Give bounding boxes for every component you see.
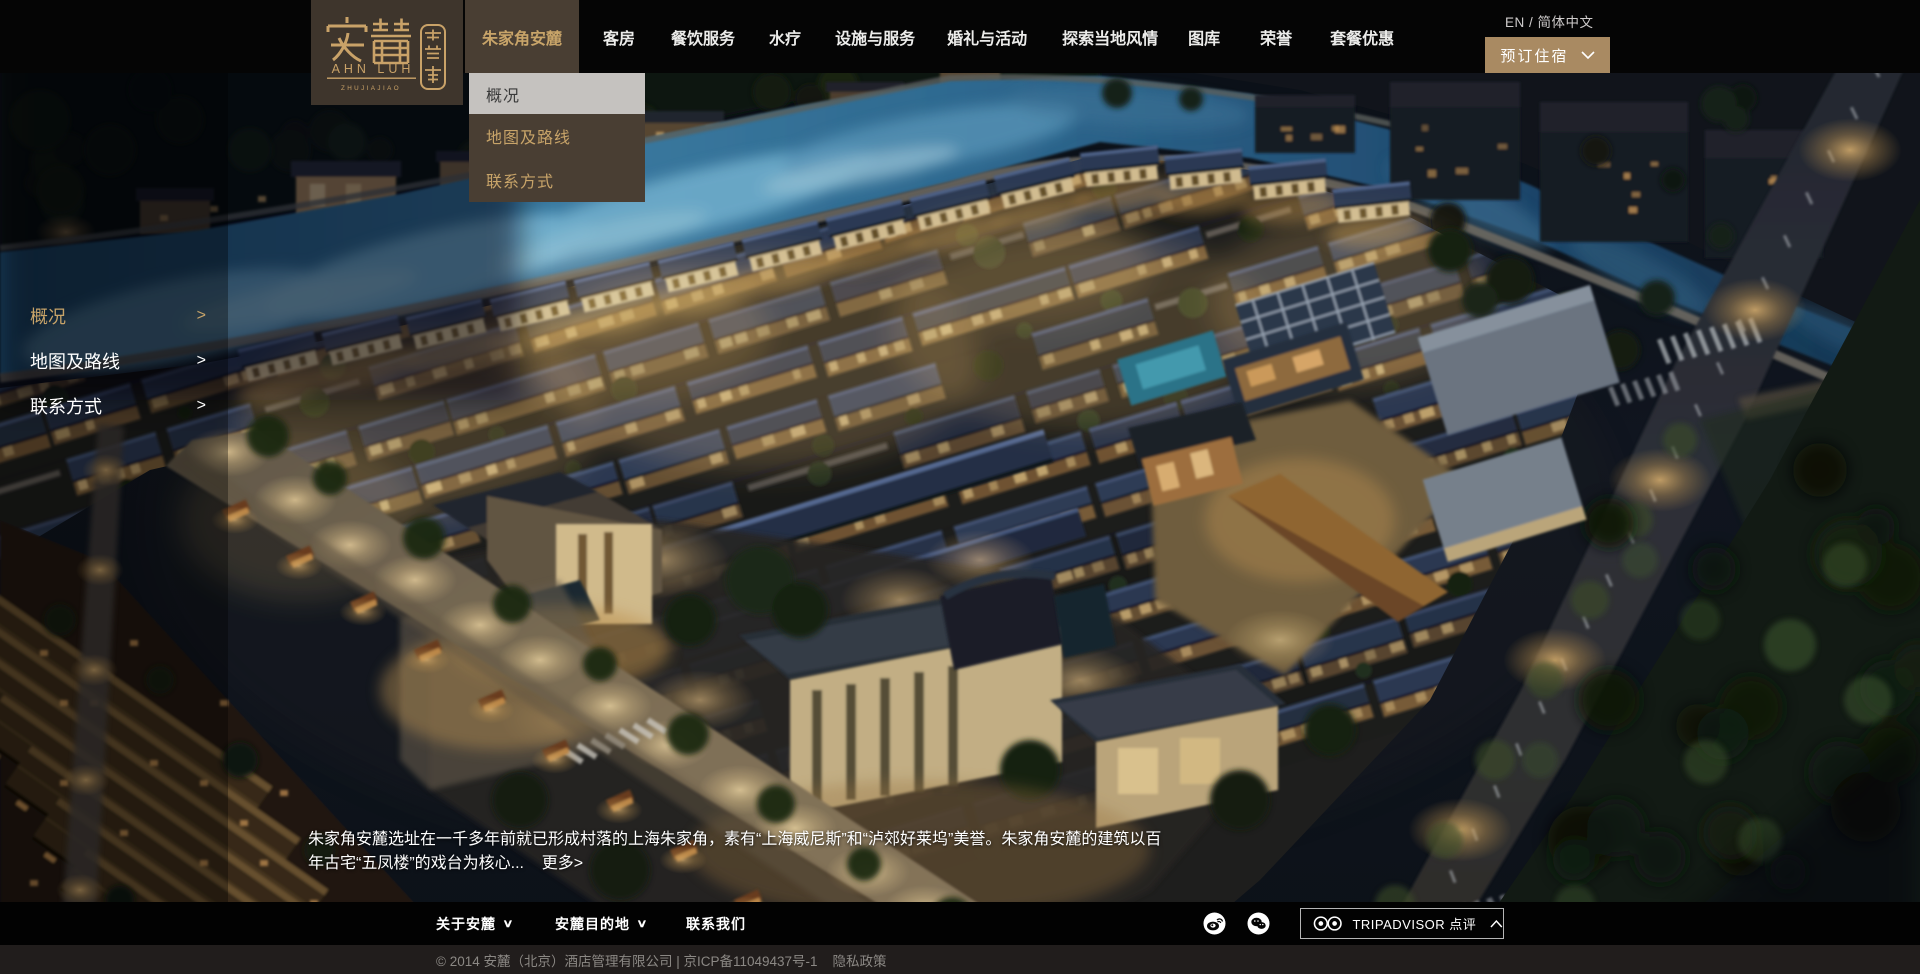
svg-text:ZHUJIAJIAO: ZHUJIAJIAO: [341, 85, 401, 92]
svg-text:AHN LUH: AHN LUH: [332, 62, 415, 76]
